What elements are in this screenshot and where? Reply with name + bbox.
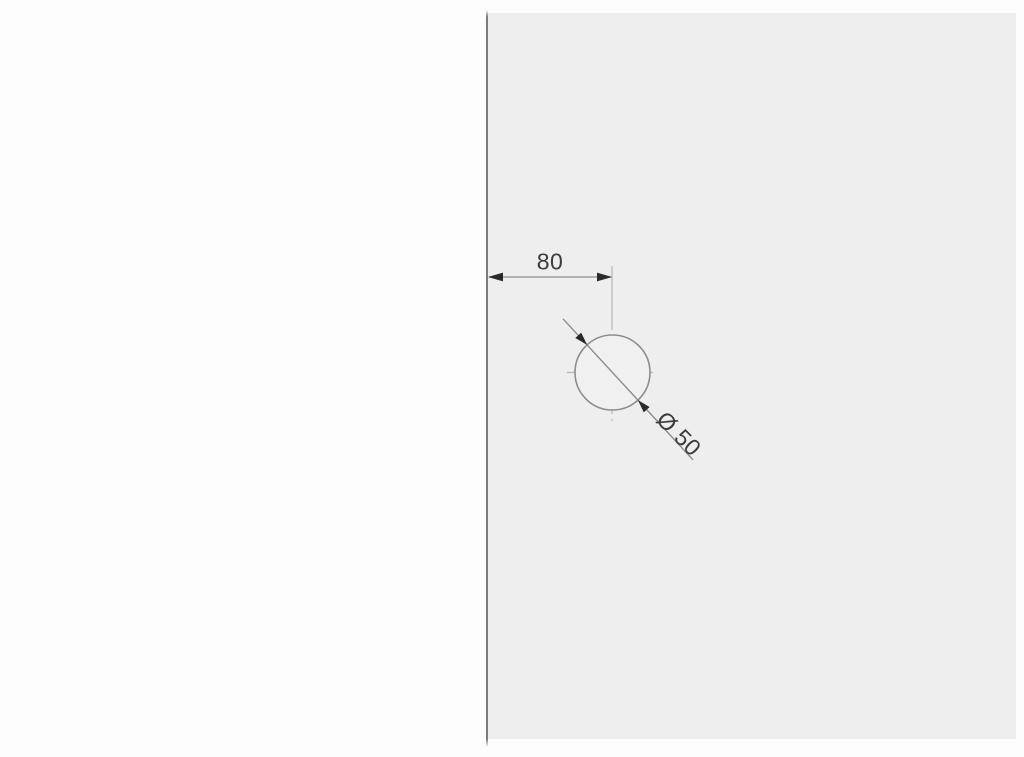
offset-arrow-right-icon xyxy=(597,273,612,282)
technical-drawing-canvas: 80 Ø 50 xyxy=(0,0,1024,757)
diameter-dimension-label: Ø 50 xyxy=(651,406,706,461)
dimension-drawing: 80 Ø 50 xyxy=(0,0,1024,757)
offset-arrow-left-icon xyxy=(488,273,503,282)
offset-dimension-label: 80 xyxy=(537,249,564,275)
